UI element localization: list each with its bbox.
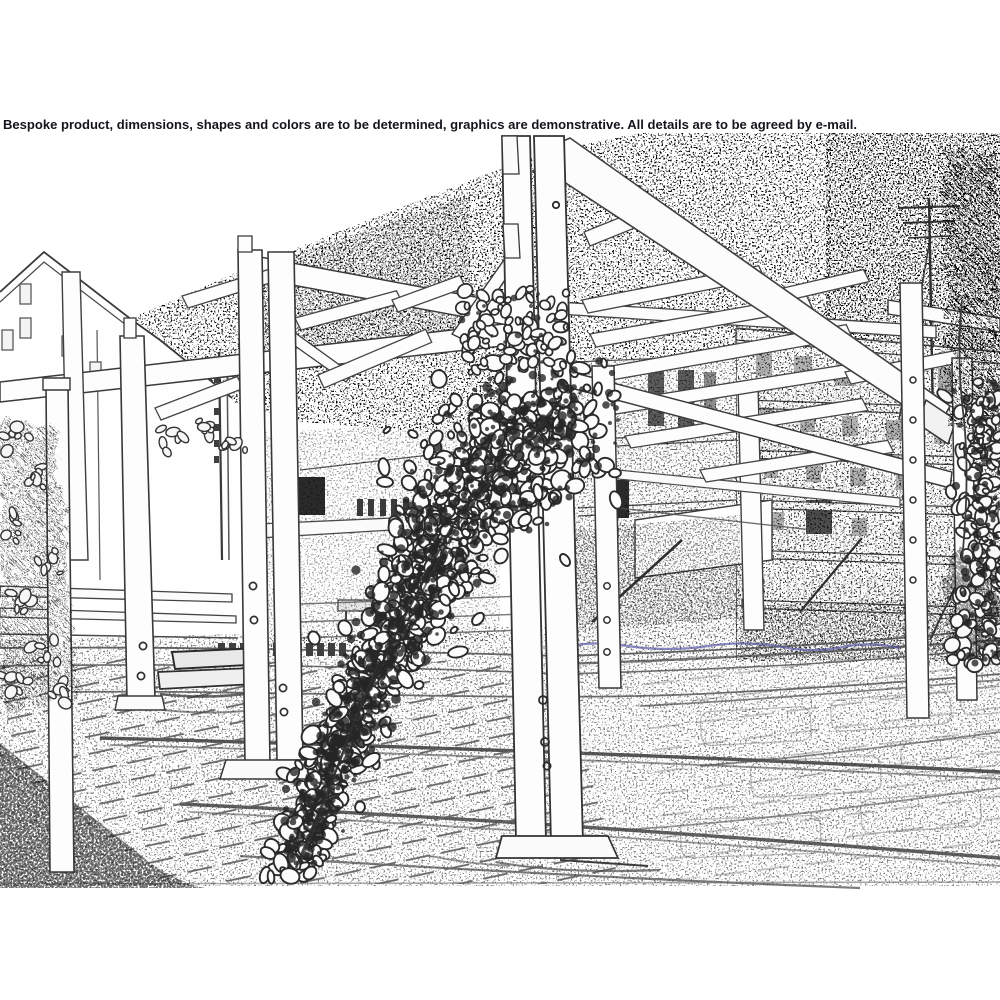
- svg-text:Bespoke product, dimensions, s: Bespoke product, dimensions, shapes and …: [3, 117, 857, 132]
